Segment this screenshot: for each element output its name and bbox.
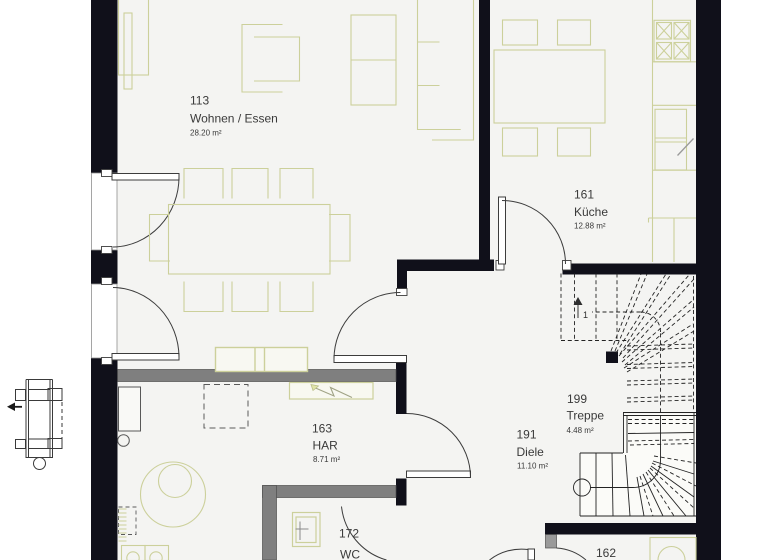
svg-text:113: 113 (190, 94, 209, 108)
svg-text:HAR: HAR (313, 439, 339, 453)
svg-text:162: 162 (596, 546, 616, 560)
svg-text:Diele: Diele (517, 445, 545, 459)
svg-text:11.10 m²: 11.10 m² (517, 461, 548, 470)
svg-text:161: 161 (574, 187, 594, 201)
svg-text:Küche: Küche (574, 205, 608, 219)
svg-text:Treppe: Treppe (567, 409, 605, 423)
svg-text:4.48 m²: 4.48 m² (567, 426, 594, 435)
svg-text:199: 199 (567, 392, 587, 406)
svg-text:191: 191 (517, 427, 537, 441)
svg-text:172: 172 (339, 526, 359, 540)
svg-text:8.71 m²: 8.71 m² (313, 455, 340, 464)
svg-text:28.20 m²: 28.20 m² (190, 129, 222, 138)
svg-text:1: 1 (583, 310, 588, 320)
svg-text:12.88 m²: 12.88 m² (574, 221, 606, 230)
svg-text:Wohnen / Essen: Wohnen / Essen (190, 112, 278, 126)
svg-text:WC: WC (340, 548, 360, 560)
svg-text:163: 163 (312, 422, 332, 436)
